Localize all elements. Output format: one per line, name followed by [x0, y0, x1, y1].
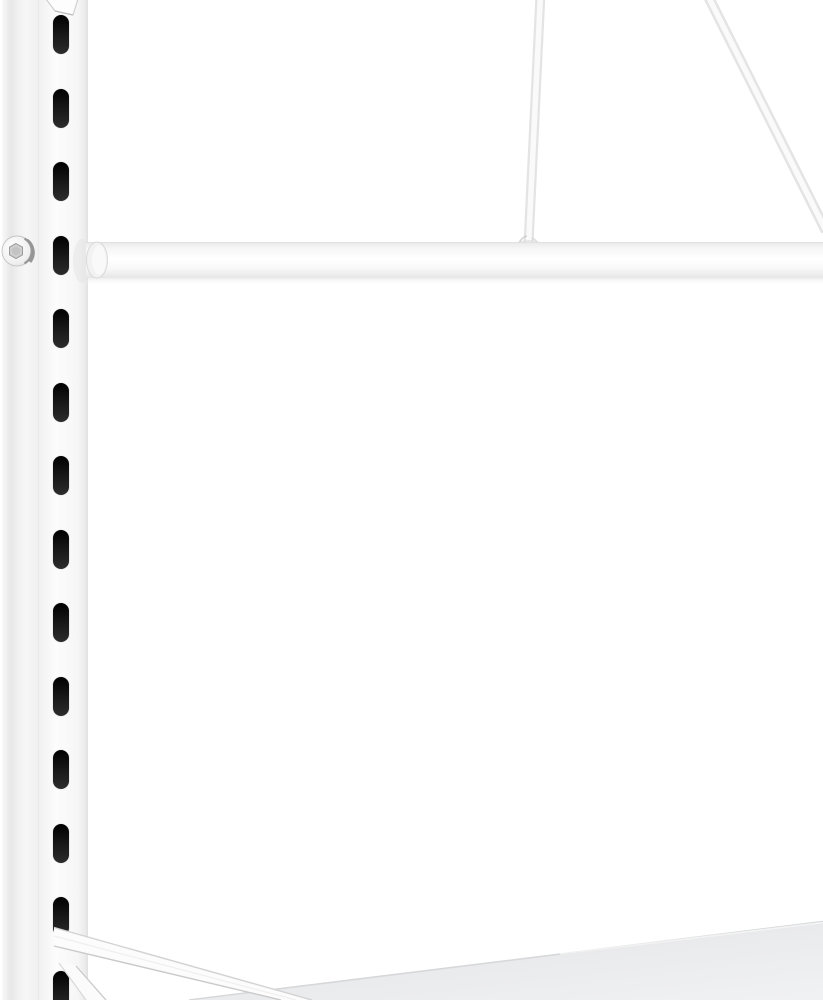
beam-hook	[46, 0, 78, 15]
brace-rod-diagonal	[707, 0, 823, 231]
product-photo	[0, 0, 823, 1000]
lower-strut	[59, 963, 106, 1000]
hang-rail	[86, 242, 823, 286]
brace-rod-vertical	[529, 0, 541, 244]
screw-head	[2, 236, 33, 266]
shelf-surface	[189, 921, 823, 1000]
rack-parts	[0, 0, 823, 1000]
